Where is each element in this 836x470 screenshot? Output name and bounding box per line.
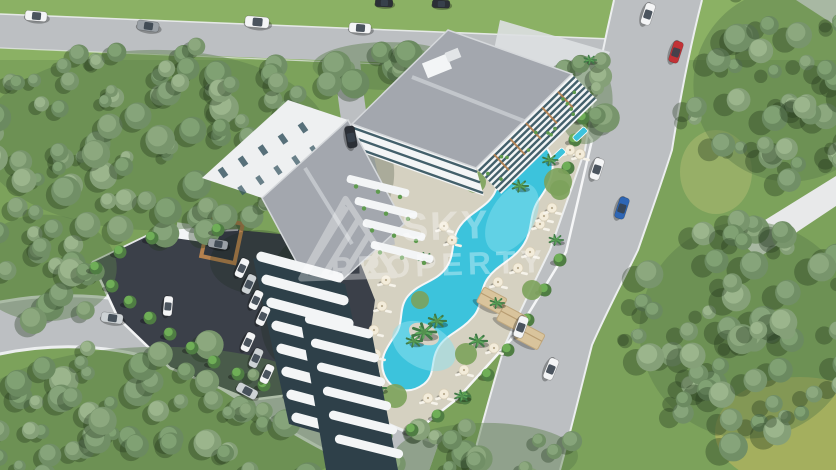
balcony-plant bbox=[500, 155, 504, 159]
forest-tree-highlight bbox=[766, 396, 778, 408]
planted-tree-highlight bbox=[114, 246, 122, 254]
balcony-plant bbox=[546, 131, 550, 135]
balcony-plant bbox=[505, 156, 509, 160]
forest-tree-highlight bbox=[807, 386, 818, 397]
forest-tree-highlight bbox=[795, 406, 805, 416]
forest-tree-highlight bbox=[106, 85, 114, 93]
forest-tree-highlight bbox=[81, 341, 91, 351]
car-windshield bbox=[356, 24, 366, 32]
forest-tree-highlight bbox=[291, 86, 303, 98]
forest-tree-highlight bbox=[57, 59, 67, 69]
planted-tree-highlight bbox=[432, 410, 440, 418]
car-windshield bbox=[108, 314, 118, 323]
forest-tree-highlight bbox=[721, 434, 741, 454]
forest-tree-highlight bbox=[62, 73, 75, 86]
forest-tree-highlight bbox=[159, 61, 171, 73]
car-windshield bbox=[438, 1, 445, 7]
forest-tree-highlight bbox=[29, 74, 38, 83]
forest-tree-highlight bbox=[372, 43, 386, 57]
palm-crown bbox=[421, 329, 426, 334]
umbrella-pole bbox=[551, 207, 553, 209]
forest-tree-highlight bbox=[127, 435, 143, 451]
forest-tree-highlight bbox=[573, 56, 585, 68]
car-windshield bbox=[381, 0, 388, 6]
forest-tree-highlight bbox=[342, 70, 362, 90]
tree-shadow bbox=[818, 159, 832, 173]
forest-tree-highlight bbox=[156, 198, 175, 217]
planted-tree-highlight bbox=[232, 368, 240, 376]
planted-tree-highlight bbox=[186, 342, 194, 350]
terrace-plant bbox=[354, 184, 358, 188]
forest-tree-highlight bbox=[11, 76, 21, 86]
tree-shadow bbox=[780, 411, 794, 425]
palm-crown bbox=[435, 319, 439, 323]
forest-tree-highlight bbox=[213, 120, 225, 132]
forest-tree-highlight bbox=[77, 302, 90, 315]
forest-tree-highlight bbox=[681, 323, 694, 336]
forest-tree-highlight bbox=[721, 409, 737, 425]
forest-tree-highlight bbox=[108, 44, 121, 57]
balcony-plant bbox=[486, 172, 490, 176]
forest-tree-highlight bbox=[563, 432, 577, 446]
forest-tree-highlight bbox=[66, 442, 79, 455]
car-windshield bbox=[347, 132, 356, 142]
lawn-patch bbox=[411, 291, 429, 309]
balcony-plant bbox=[569, 107, 573, 111]
forest-tree-highlight bbox=[40, 445, 56, 461]
car-windshield bbox=[252, 17, 263, 26]
planted-tree-highlight bbox=[146, 232, 154, 240]
forest-tree-highlight bbox=[637, 262, 656, 281]
forest-tree-highlight bbox=[761, 17, 774, 30]
forest-tree-highlight bbox=[126, 104, 144, 122]
umbrella-pole bbox=[497, 281, 499, 283]
terrace-plant bbox=[384, 211, 388, 215]
forest-tree-highlight bbox=[710, 383, 728, 401]
forest-tree-highlight bbox=[770, 359, 787, 376]
forest-tree-highlight bbox=[728, 89, 744, 105]
forest-tree-highlight bbox=[468, 452, 481, 465]
balcony-plant bbox=[553, 127, 557, 131]
forest-tree-highlight bbox=[149, 343, 166, 360]
forest-tree-highlight bbox=[22, 308, 40, 326]
forest-tree-highlight bbox=[818, 61, 832, 75]
forest-tree-highlight bbox=[51, 144, 63, 156]
forest-tree-highlight bbox=[777, 281, 794, 298]
forest-tree-highlight bbox=[269, 73, 283, 87]
terrace-plant bbox=[362, 206, 366, 210]
forest-tree-highlight bbox=[218, 445, 230, 457]
planted-tree-highlight bbox=[90, 262, 98, 270]
planted-tree-highlight bbox=[144, 312, 152, 320]
umbrella-pole bbox=[427, 397, 429, 399]
umbrella-pole bbox=[569, 149, 571, 151]
planted-tree-highlight bbox=[482, 369, 490, 377]
forest-tree-highlight bbox=[197, 332, 217, 352]
forest-tree-highlight bbox=[706, 250, 722, 266]
forest-tree-highlight bbox=[75, 356, 85, 366]
umbrella-pole bbox=[373, 329, 375, 331]
forest-tree-highlight bbox=[646, 303, 658, 315]
forest-tree-highlight bbox=[109, 216, 127, 234]
forest-tree-highlight bbox=[777, 139, 792, 154]
forest-tree-highlight bbox=[53, 162, 62, 171]
forest-tree-highlight bbox=[175, 395, 185, 405]
forest-tree-highlight bbox=[590, 108, 602, 120]
balcony-plant bbox=[499, 177, 503, 181]
balcony-plant bbox=[573, 90, 577, 94]
forest-tree-highlight bbox=[99, 115, 116, 132]
forest-tree-highlight bbox=[224, 77, 235, 88]
forest-tree-highlight bbox=[713, 358, 725, 370]
forest-tree-highlight bbox=[687, 98, 701, 112]
forest-tree-highlight bbox=[256, 403, 268, 415]
palm-crown bbox=[548, 158, 551, 161]
forest-tree-highlight bbox=[197, 371, 213, 387]
forest-tree-highlight bbox=[105, 397, 114, 406]
forest-tree-highlight bbox=[84, 141, 103, 160]
planted-tree-highlight bbox=[212, 224, 220, 232]
forest-tree-highlight bbox=[91, 55, 101, 65]
planted-tree-highlight bbox=[164, 328, 172, 336]
forest-tree-highlight bbox=[116, 158, 129, 171]
balcony-plant bbox=[571, 112, 575, 116]
forest-tree-highlight bbox=[444, 431, 458, 445]
car-windshield bbox=[144, 22, 154, 31]
palm-crown bbox=[476, 339, 480, 343]
forest-tree-highlight bbox=[764, 106, 782, 124]
forest-tree-highlight bbox=[172, 75, 184, 87]
forest-tree-highlight bbox=[769, 65, 779, 75]
forest-tree-highlight bbox=[214, 205, 231, 222]
forest-tree-highlight bbox=[139, 192, 152, 205]
umbrella-pole bbox=[579, 153, 581, 155]
forest-tree-highlight bbox=[729, 211, 744, 226]
forest-tree-highlight bbox=[751, 322, 763, 334]
forest-tree-highlight bbox=[787, 23, 805, 41]
forest-tree-highlight bbox=[206, 62, 225, 81]
lawn-patch bbox=[550, 180, 570, 200]
forest-tree-highlight bbox=[34, 358, 50, 374]
forest-tree-highlight bbox=[713, 134, 729, 150]
balcony-plant bbox=[566, 102, 570, 106]
balcony-plant bbox=[549, 133, 553, 137]
forest-tree-highlight bbox=[205, 391, 218, 404]
forest-tree-highlight bbox=[745, 370, 761, 386]
planted-tree-highlight bbox=[502, 344, 510, 352]
forest-tree-highlight bbox=[149, 401, 164, 416]
forest-tree-highlight bbox=[758, 137, 770, 149]
umbrella-pole bbox=[543, 215, 545, 217]
watermark-text-line1: SKY bbox=[401, 203, 491, 250]
umbrella-pole bbox=[493, 347, 495, 349]
forest-tree-highlight bbox=[30, 396, 40, 406]
planted-tree-highlight bbox=[124, 296, 132, 304]
palm-crown bbox=[495, 301, 498, 304]
forest-tree-highlight bbox=[7, 371, 25, 389]
terrace-plant bbox=[392, 233, 396, 237]
forest-tree-highlight bbox=[750, 40, 767, 57]
palm-crown bbox=[518, 184, 522, 188]
umbrella-pole bbox=[539, 223, 541, 225]
forest-tree-highlight bbox=[23, 423, 35, 435]
forest-tree-highlight bbox=[11, 151, 27, 167]
forest-tree-highlight bbox=[792, 157, 802, 167]
forest-tree-highlight bbox=[178, 363, 190, 375]
forest-tree-highlight bbox=[681, 344, 699, 362]
forest-tree-highlight bbox=[725, 25, 744, 44]
palm-crown bbox=[412, 339, 416, 343]
forest-tree-highlight bbox=[636, 295, 648, 307]
forest-tree-highlight bbox=[633, 329, 643, 339]
car-windshield bbox=[164, 302, 172, 311]
car-windshield bbox=[214, 240, 223, 248]
watermark-text-line2: PROPERTY bbox=[330, 243, 547, 287]
forest-tree-highlight bbox=[28, 227, 39, 238]
planted-tree-highlight bbox=[554, 254, 562, 262]
forest-tree-highlight bbox=[189, 38, 201, 50]
forest-tree-highlight bbox=[116, 190, 131, 205]
forest-tree-highlight bbox=[101, 194, 112, 205]
forest-tree-highlight bbox=[548, 445, 558, 455]
terrace-plant bbox=[376, 189, 380, 193]
aerial-render: SKY PROPERTY bbox=[0, 0, 836, 470]
forest-tree-highlight bbox=[181, 118, 200, 137]
forest-tree-highlight bbox=[318, 72, 335, 89]
forest-tree-highlight bbox=[184, 172, 203, 191]
forest-tree-highlight bbox=[677, 392, 688, 403]
umbrella-pole bbox=[443, 393, 445, 395]
forest-tree-highlight bbox=[240, 403, 251, 414]
balcony-plant bbox=[561, 97, 565, 101]
tree-shadow bbox=[618, 334, 632, 348]
forest-tree-highlight bbox=[809, 254, 829, 274]
forest-tree-highlight bbox=[13, 169, 30, 186]
forest-tree-highlight bbox=[53, 178, 73, 198]
forest-tree-highlight bbox=[592, 82, 601, 91]
forest-tree-highlight bbox=[324, 52, 344, 72]
tree-shadow bbox=[819, 23, 833, 37]
car-windshield bbox=[32, 12, 42, 20]
forest-tree-highlight bbox=[736, 233, 748, 245]
forest-tree-highlight bbox=[199, 198, 213, 212]
forest-tree-highlight bbox=[70, 45, 84, 59]
umbrella-pole bbox=[463, 369, 465, 371]
balcony-plant bbox=[534, 131, 538, 135]
balcony-plant bbox=[527, 148, 531, 152]
palm-crown bbox=[589, 59, 592, 62]
forest-tree-highlight bbox=[223, 407, 232, 416]
forest-tree-highlight bbox=[735, 142, 744, 151]
forest-tree-highlight bbox=[248, 369, 256, 377]
forest-tree-highlight bbox=[638, 345, 657, 364]
forest-tree-highlight bbox=[195, 431, 214, 450]
forest-tree-highlight bbox=[236, 115, 246, 125]
tree-shadow bbox=[785, 60, 800, 75]
forest-tree-highlight bbox=[397, 42, 416, 61]
forest-tree-highlight bbox=[29, 206, 39, 216]
aerial-render-stage: SKY PROPERTY bbox=[0, 0, 836, 470]
forest-tree-highlight bbox=[693, 223, 709, 239]
forest-tree-highlight bbox=[100, 95, 109, 104]
forest-tree-highlight bbox=[533, 434, 543, 444]
forest-tree-highlight bbox=[14, 461, 22, 469]
palm-crown bbox=[460, 394, 463, 397]
planted-tree-highlight bbox=[208, 356, 216, 364]
palm-crown bbox=[554, 238, 557, 241]
planted-tree-highlight bbox=[106, 280, 114, 288]
forest-tree-highlight bbox=[724, 274, 737, 287]
forest-tree-highlight bbox=[800, 56, 811, 67]
tree-shadow bbox=[662, 397, 677, 412]
planted-tree-highlight bbox=[406, 424, 414, 432]
forest-tree-highlight bbox=[33, 238, 46, 251]
lawn-patch bbox=[455, 343, 477, 365]
forest-tree-highlight bbox=[779, 169, 795, 185]
forest-tree-highlight bbox=[794, 97, 810, 113]
forest-tree-highlight bbox=[90, 408, 109, 427]
forest-tree-highlight bbox=[178, 58, 194, 74]
forest-tree-highlight bbox=[35, 97, 45, 107]
umbrella-pole bbox=[381, 305, 383, 307]
forest-tree-highlight bbox=[64, 388, 78, 402]
terrace-plant bbox=[398, 195, 402, 199]
forest-tree-highlight bbox=[52, 101, 64, 113]
forest-tree-highlight bbox=[161, 433, 176, 448]
forest-tree-highlight bbox=[429, 431, 439, 441]
forest-tree-highlight bbox=[77, 213, 95, 231]
forest-tree-highlight bbox=[773, 222, 788, 237]
forest-tree-highlight bbox=[45, 220, 58, 233]
forest-tree-highlight bbox=[147, 126, 167, 146]
forest-tree-highlight bbox=[742, 253, 761, 272]
lawn-patch bbox=[522, 280, 542, 300]
tree-shadow bbox=[764, 415, 777, 428]
tree-shadow bbox=[688, 311, 701, 324]
tree-shadow bbox=[754, 70, 767, 83]
forest-tree-highlight bbox=[771, 310, 790, 329]
forest-tree-highlight bbox=[8, 198, 22, 212]
forest-tree-highlight bbox=[459, 419, 472, 432]
forest-tree-highlight bbox=[257, 417, 268, 428]
planted-tree-highlight bbox=[562, 162, 570, 170]
